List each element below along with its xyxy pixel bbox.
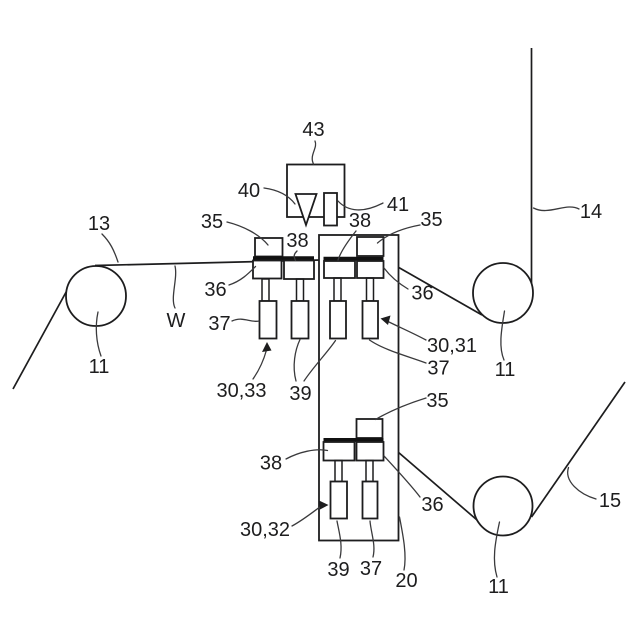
leader-39-upper-a [294, 340, 300, 382]
label-36-right: 36 [411, 283, 433, 305]
label-36-lower: 36 [421, 494, 443, 516]
diagram-canvas: 43 40 41 13 35 38 38 35 14 36 W 37 36 11… [0, 0, 640, 640]
label-43: 43 [302, 119, 324, 141]
label-35-upper-right: 35 [420, 209, 442, 231]
label-11-mid-right: 11 [495, 359, 516, 381]
ul-cylinder-1 [260, 301, 277, 339]
label-15: 15 [599, 490, 621, 512]
label-30-33: 30,33 [216, 380, 266, 402]
ul-cylinder-2 [292, 301, 309, 339]
roller-upper-left [66, 266, 126, 326]
label-37-left: 37 [208, 313, 230, 335]
ul-top-clamp-block [255, 238, 283, 257]
leader-30-32 [292, 507, 321, 527]
label-20: 20 [395, 570, 417, 592]
label-30-32: 30,32 [240, 519, 290, 541]
roller-bottom-right [474, 477, 533, 536]
nozzle-rect [324, 193, 337, 226]
clamp-unit-upper-left [253, 238, 314, 339]
lower-right-clamp-block [357, 442, 384, 461]
hopper-assembly [287, 165, 345, 226]
label-35-upper-left: 35 [201, 211, 223, 233]
lower-cylinder-5 [331, 482, 348, 519]
leader-36-left [229, 267, 256, 286]
label-30-31: 30,31 [427, 335, 477, 357]
label-38-upper-right: 38 [349, 210, 371, 232]
label-35-mid-right: 35 [426, 390, 448, 412]
label-37-lower: 37 [360, 558, 382, 580]
patent-figure: 43 40 41 13 35 38 38 35 14 36 W 37 36 11… [0, 0, 640, 640]
ur-left-clamp-block [324, 261, 355, 278]
ul-left-clamp-block [253, 261, 282, 279]
leader-30-33 [253, 350, 267, 379]
lower-cylinder-6 [363, 482, 378, 519]
ur-right-clamp-block [357, 261, 384, 278]
label-38-upper-left: 38 [286, 230, 308, 252]
roller-mid-right [473, 263, 533, 323]
label-39-upper: 39 [289, 383, 311, 405]
ur-cylinder-3 [330, 301, 346, 339]
arrowhead-30-33-icon [262, 342, 272, 352]
ur-top-clamp-block [357, 237, 384, 256]
lower-top-clamp-block [357, 419, 383, 438]
leader-w [173, 266, 175, 308]
label-40: 40 [238, 180, 260, 202]
label-w: W [167, 310, 186, 332]
leader-20 [400, 517, 406, 570]
label-14: 14 [580, 201, 602, 223]
lower-left-clamp-block [324, 442, 355, 461]
leader-15 [568, 468, 596, 500]
leader-37-left [232, 319, 259, 321]
label-37-right: 37 [427, 358, 449, 380]
ur-cylinder-4 [363, 301, 379, 339]
label-41: 41 [387, 194, 409, 216]
label-36-left: 36 [204, 279, 226, 301]
label-39-lower: 39 [327, 559, 349, 581]
label-11-bottom-right: 11 [488, 576, 509, 598]
leader-14 [534, 207, 580, 211]
ul-rod-2 [297, 279, 304, 301]
label-13: 13 [88, 213, 110, 235]
leader-43 [312, 141, 315, 164]
ul-rod-1 [262, 279, 269, 301]
web-line-incoming-lower-left [13, 284, 71, 389]
label-38-lower: 38 [260, 453, 282, 475]
leader-13 [102, 234, 118, 262]
ul-right-clamp-block [284, 261, 314, 280]
label-11-upper-left: 11 [89, 356, 110, 378]
